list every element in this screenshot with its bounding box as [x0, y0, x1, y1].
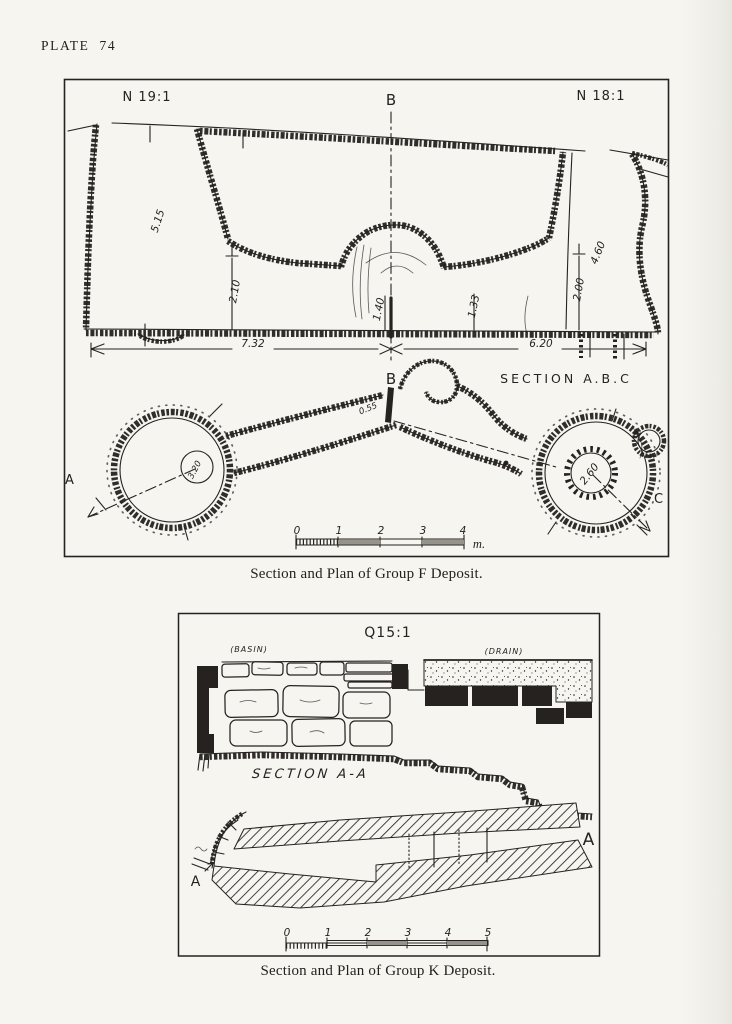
scale-tick-3: 3	[420, 525, 427, 537]
scale-k-tick-4: 4	[445, 927, 452, 939]
scale-unit: m.	[473, 537, 485, 551]
scale-k-tick-2: 2	[365, 927, 372, 939]
plan-point-a: A	[65, 473, 75, 488]
grid-label-q15: Q15:1	[364, 625, 411, 641]
section-drawing-k	[197, 660, 592, 817]
scale-tick-0: 0	[294, 525, 301, 537]
measurement-1-33: 1.33	[466, 294, 483, 319]
plan-drawing-k	[192, 803, 592, 908]
scale-tick-1: 1	[336, 525, 343, 537]
scale-bar-f: 0 1 2 3 4 m.	[294, 525, 485, 551]
measurement-7-32: 7.32	[241, 338, 265, 350]
measurement-3-20: 3.20	[186, 459, 204, 480]
measurement-2-00: 2.00	[571, 277, 587, 302]
section-point-b-top: B	[386, 91, 396, 109]
plan-point-c: C	[654, 492, 664, 507]
scale-bar-k: 0 1 2 3 4 5	[284, 927, 492, 951]
scale-k-tick-3: 3	[405, 927, 412, 939]
grid-label-n18: N 18:1	[576, 89, 625, 104]
scale-k-tick-5: 5	[485, 927, 492, 939]
measurement-5-15: 5.15	[149, 208, 168, 234]
plate-number-label: PLATE 74	[41, 38, 116, 54]
feature-label-drain: (DRAIN)	[485, 647, 524, 656]
scale-k-tick-1: 1	[325, 927, 332, 939]
scale-k-tick-0: 0	[284, 927, 291, 939]
section-title-abc: SECTION A.B.C	[500, 371, 632, 386]
plan-point-a-right: A	[583, 830, 596, 850]
grid-label-n19: N 19:1	[122, 90, 171, 105]
section-drawing-f	[68, 112, 668, 360]
feature-label-basin: (BASIN)	[230, 645, 268, 654]
section-point-b-bottom: B	[386, 370, 396, 388]
scale-tick-2: 2	[378, 525, 385, 537]
caption-figure-f: Section and Plan of Group F Deposit.	[63, 566, 670, 583]
measurement-4-60: 4.60	[588, 239, 608, 265]
section-measurements-f: 5.15 2.10 1.40 1.33 2.00 4.60 7.32 6.20	[149, 208, 608, 350]
measurement-2-60: 2.60	[578, 461, 602, 487]
figure-group-k-deposit: Q15:1 (BASIN) (DRAIN)	[177, 612, 601, 958]
measurement-2-10: 2.10	[227, 279, 243, 304]
plan-drawing-f	[88, 361, 664, 540]
figure-f-frame	[65, 80, 669, 557]
scale-tick-4: 4	[460, 525, 467, 537]
section-title-aa: SECTION A-A	[251, 767, 369, 782]
scanned-plate-page: { "page": { "plate_label": "PLATE 74", "…	[0, 0, 732, 1024]
figure-group-f-deposit: N 19:1 B N 18:1	[63, 78, 670, 558]
basin-masonry	[222, 662, 394, 747]
plan-point-a-left: A	[191, 874, 202, 890]
measurement-6-20: 6.20	[529, 338, 553, 350]
caption-figure-k: Section and Plan of Group K Deposit.	[150, 963, 606, 980]
